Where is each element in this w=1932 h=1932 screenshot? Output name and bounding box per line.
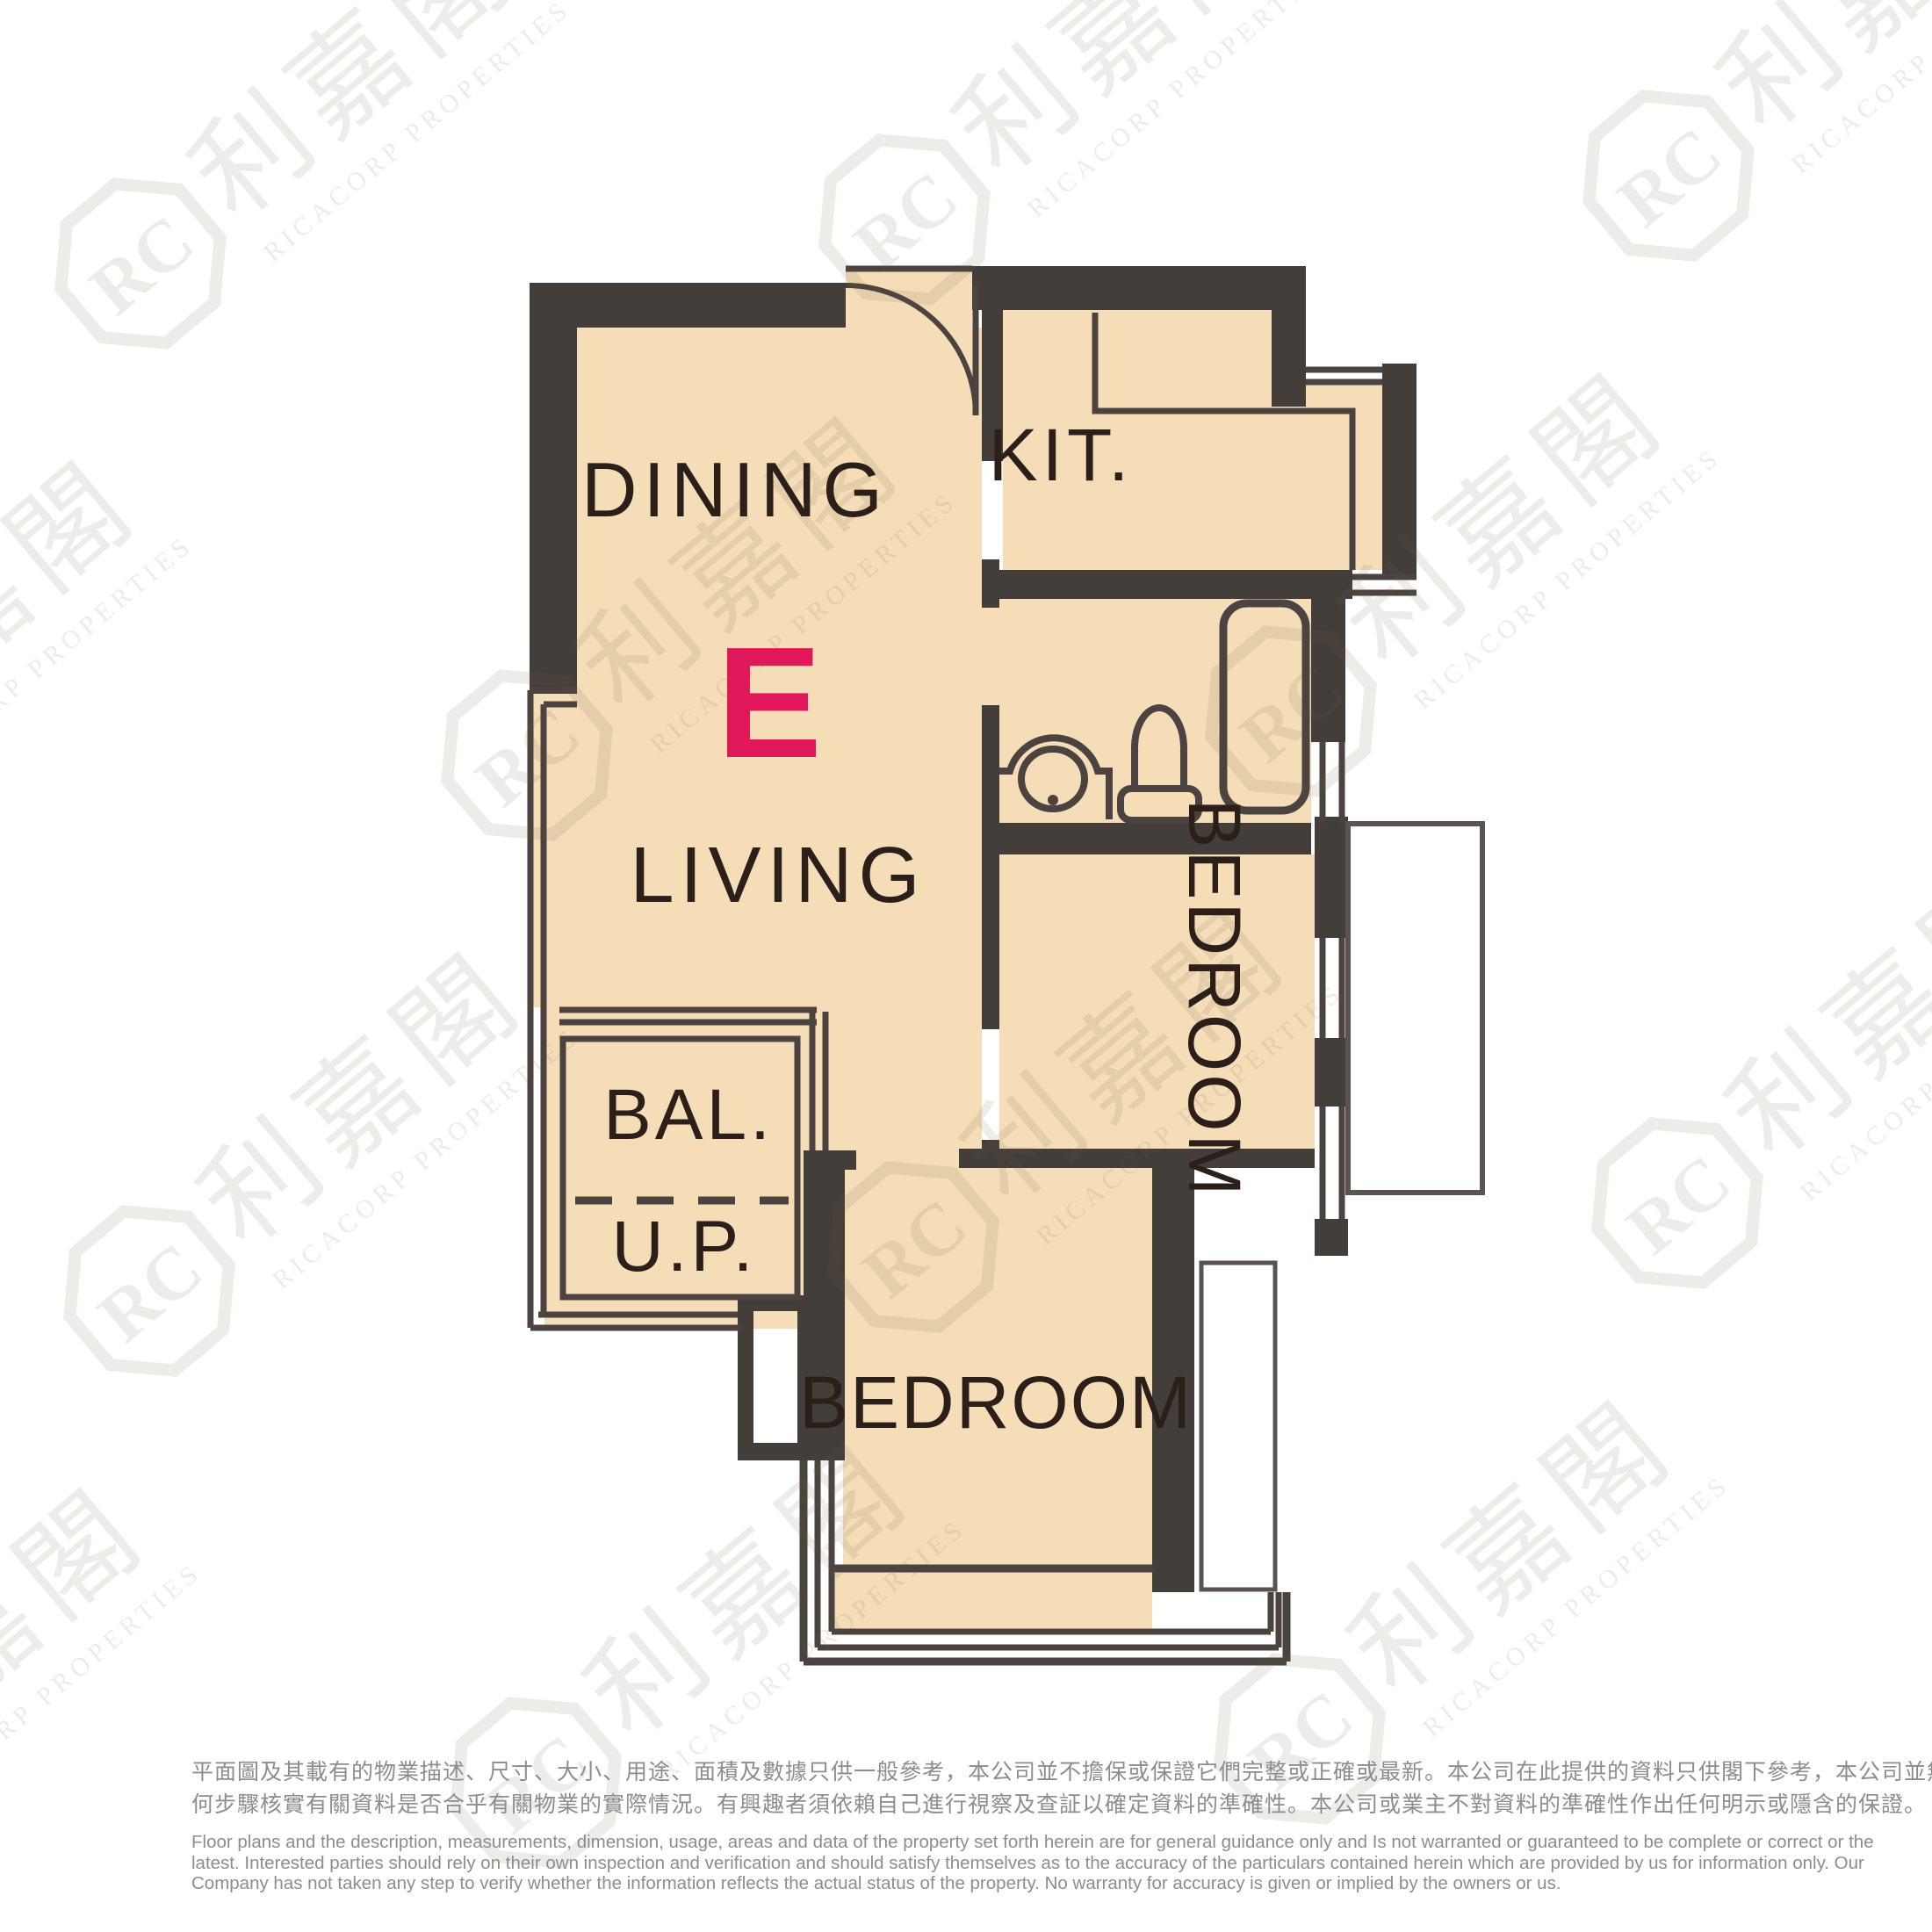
disclaimer-chinese: 平面圖及其載有的物業描述、尺寸、大小、用途、面積及數據只供一般參考，本公司並不擔… <box>191 1756 1906 1821</box>
wall-bath-top <box>999 570 1311 599</box>
wall-up-bump <box>845 1150 856 1170</box>
room-label-living: LIVING <box>630 832 926 919</box>
room-label-dining: DINING <box>581 446 889 533</box>
platform-southeast <box>1201 1263 1275 1590</box>
wall-bath-bottom <box>982 823 1311 854</box>
wall-east-seg1 <box>1315 817 1348 938</box>
disclaimer-en-line1: Floor plans and the description, measure… <box>191 1832 1906 1853</box>
disclaimer-zh-line1: 平面圖及其載有的物業描述、尺寸、大小、用途、面積及數據只供一般參考，本公司並不擔… <box>191 1756 1906 1789</box>
floorplan-svg: RC 利嘉閣 RICACORP PROPERTIES <box>0 0 1932 1932</box>
wall-east-seg3 <box>1315 1219 1348 1256</box>
wall-bath-door-jamb-top <box>982 559 999 608</box>
disclaimer-en-line2: latest. Interested parties should rely o… <box>191 1853 1906 1874</box>
floorplan-page: { "floorplan": { "unit_label": "E", "lab… <box>0 0 1932 1932</box>
room-label-balcony: BAL. <box>603 1075 774 1155</box>
wall-bedroom-right-left <box>982 854 999 1029</box>
room-label-bedroom-right: BEDROOM <box>1173 798 1256 1198</box>
wall-kitchen-step <box>1272 266 1306 407</box>
wall-kitchen-top <box>972 266 1306 310</box>
room-label-bedroom-bottom: BEDROOM <box>799 1361 1193 1444</box>
disclaimer-zh-line2: 何步驟核實有關資料是否合乎有關物業的實際情況。有興趣者須依賴自己進行視察及查証以… <box>191 1789 1906 1821</box>
room-label-utility: U.P. <box>612 1207 757 1287</box>
disclaimer-english: Floor plans and the description, measure… <box>191 1832 1906 1894</box>
platform-east <box>1348 824 1482 1193</box>
wall-bath-left <box>982 705 999 823</box>
room-label-kitchen: KIT. <box>989 414 1134 496</box>
unit-label: E <box>717 615 822 791</box>
disclaimer-block: 平面圖及其載有的物業描述、尺寸、大小、用途、面積及數據只供一般參考，本公司並不擔… <box>191 1756 1906 1894</box>
floor-bath-doorway <box>982 608 999 705</box>
sink-faucet-icon <box>1048 795 1058 805</box>
disclaimer-en-line3: Company has not taken any step to verify… <box>191 1873 1906 1894</box>
wall-east-seg2 <box>1315 1038 1348 1107</box>
